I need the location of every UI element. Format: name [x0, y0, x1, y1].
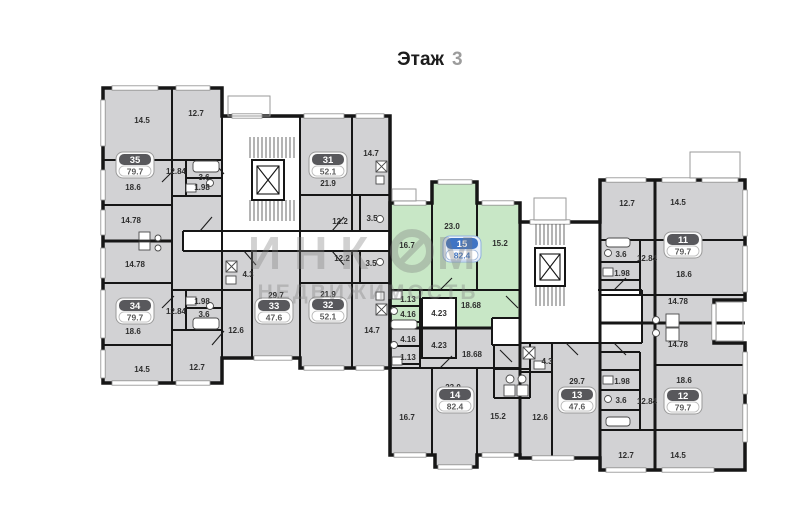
duct-icon [666, 314, 679, 327]
apartment-badge-35[interactable]: 35 79.7 [116, 152, 154, 178]
room-area-label: 14.78 [668, 297, 689, 306]
balcony [392, 189, 416, 201]
room-area-label: 1.98 [614, 377, 630, 386]
room-area-label: 1.13 [400, 295, 416, 304]
room-area-label: 4.16 [400, 310, 416, 319]
apartment-badge-15[interactable]: 15 82.4 [443, 236, 481, 262]
apartment-area: 52.1 [320, 312, 337, 322]
room-area-label: 1.98 [614, 269, 630, 278]
room-area-label: 3.6 [615, 396, 627, 405]
room-area-label: 12.7 [618, 451, 634, 460]
balcony [534, 198, 566, 220]
apartment-area: 79.7 [127, 167, 144, 177]
apartment-number: 33 [269, 301, 280, 312]
bathtub-icon [606, 417, 630, 426]
apartment-number: 31 [323, 155, 334, 166]
apartment-number: 32 [323, 300, 334, 311]
room-area-label: 16.7 [399, 413, 415, 422]
bathtub-icon [391, 320, 417, 329]
washer-icon [603, 376, 613, 384]
balcony [690, 152, 740, 178]
room-area-label: 15.2 [492, 239, 508, 248]
apartment-badge-11[interactable]: 11 79.7 [664, 232, 702, 258]
apartment-area: 47.6 [569, 402, 586, 412]
room-area-label: 18.6 [676, 270, 692, 279]
sink-square-icon [376, 176, 384, 184]
room-area-label: 12.7 [188, 109, 204, 118]
room-area-label: 4.3 [541, 357, 553, 366]
room-area-label: 16.7 [399, 241, 415, 250]
apartment-number: 13 [572, 390, 583, 401]
room-area-label: 12.6 [532, 413, 548, 422]
room-area-label: 3.6 [198, 310, 210, 319]
floorplan-page: 14.5 12.7 12.84 3.6 1.98 18.6 14.78 14.7… [0, 0, 800, 529]
room-area-label: 14.5 [670, 451, 686, 460]
room-area-label: 4.16 [400, 335, 416, 344]
apartment-15-entry [493, 318, 520, 345]
room-area-label: 14.7 [363, 149, 379, 158]
apartment-badge-32[interactable]: 32 52.1 [309, 297, 347, 323]
room-area-label: 18.6 [125, 327, 141, 336]
apartment-area: 79.7 [127, 313, 144, 323]
room-area-label: 14.78 [668, 340, 689, 349]
sink-icon [155, 245, 161, 251]
toilet-icon [391, 342, 398, 349]
room-area-label: 1.98 [194, 297, 210, 306]
apartment-area: 79.7 [675, 247, 692, 257]
apartment-number: 15 [457, 239, 468, 250]
apartment-number: 34 [130, 301, 141, 312]
room-area-label: 21.9 [320, 179, 336, 188]
floorplan-svg: 14.5 12.7 12.84 3.6 1.98 18.6 14.78 14.7… [0, 0, 800, 529]
apartment-number: 35 [130, 155, 141, 166]
floor-title-label: Этаж [397, 49, 444, 70]
apartment-badge-12[interactable]: 12 79.7 [664, 388, 702, 414]
room-area-label: 14.5 [134, 365, 150, 374]
duct-icon [504, 385, 515, 396]
room-area-label: 12.84 [637, 397, 658, 406]
room-area-label: 12.84 [166, 307, 187, 316]
apartment-number: 11 [678, 235, 689, 246]
bathtub-icon [193, 161, 219, 172]
bathtub-icon [193, 318, 219, 329]
apartment-badge-33[interactable]: 33 47.6 [255, 298, 293, 324]
room-area-label: 3.6 [615, 250, 627, 259]
apartment-badge-31[interactable]: 31 52.1 [309, 152, 347, 178]
balcony [228, 96, 270, 116]
sink-square-icon [376, 292, 384, 300]
room-area-label: 14.5 [670, 198, 686, 207]
apartment-number: 12 [678, 391, 689, 402]
room-area-label: 18.6 [125, 183, 141, 192]
room-area-label: 15.2 [490, 412, 506, 421]
room-area-label: 4.3 [242, 270, 254, 279]
floor-title-number: 3 [452, 49, 463, 70]
toilet-icon [377, 259, 384, 266]
building-sections [103, 88, 745, 470]
duct-icon [517, 385, 528, 396]
floor-title: Этаж 3 [397, 49, 462, 70]
apartment-area: 82.4 [454, 251, 471, 261]
room-area-label: 12.84 [637, 254, 658, 263]
room-area-label: 3.5 [366, 214, 378, 223]
apartment-area: 82.4 [447, 402, 464, 412]
apartment-area: 79.7 [675, 403, 692, 413]
toilet-icon [605, 250, 612, 257]
toilet-icon [605, 396, 612, 403]
room-area-label: 14.5 [134, 116, 150, 125]
sink-icon [155, 235, 161, 241]
apartment-badge-14[interactable]: 14 82.4 [436, 387, 474, 413]
sink-icon [653, 330, 660, 337]
duct-icon [139, 232, 150, 240]
sink-icon [518, 375, 526, 383]
bathtub-icon [606, 238, 630, 247]
apartment-badge-34[interactable]: 34 79.7 [116, 298, 154, 324]
room-area-label: 12.2 [332, 217, 348, 226]
apartment-number: 14 [450, 390, 461, 401]
room-area-label: 3.6 [198, 173, 210, 182]
room-area-label: 18.6 [676, 376, 692, 385]
room-area-label: 14.7 [364, 326, 380, 335]
room-area-label: 4.23 [431, 341, 447, 350]
washer-icon [226, 276, 236, 284]
room-area-label: 1.13 [400, 353, 416, 362]
left-stair-core [222, 118, 300, 231]
toilet-icon [391, 308, 398, 315]
room-area-label: 1.98 [194, 183, 210, 192]
room-area-label: 14.78 [121, 216, 142, 225]
room-area-label: 12.2 [334, 254, 350, 263]
sink-icon [653, 317, 660, 324]
room-area-label: 3.5 [365, 259, 377, 268]
room-area-label: 14.78 [125, 260, 146, 269]
left-corridor [183, 231, 390, 251]
room-area-label: 18.68 [462, 350, 483, 359]
room-area-label: 18.68 [461, 301, 482, 310]
room-area-label: 29.7 [569, 377, 585, 386]
right-corridor [598, 290, 642, 343]
apartment-area: 47.6 [266, 313, 283, 323]
apartment-badge-13[interactable]: 13 47.6 [558, 387, 596, 413]
room-area-label: 23.0 [444, 222, 460, 231]
apartment-area: 52.1 [320, 167, 337, 177]
room-area-label: 12.7 [619, 199, 635, 208]
room-area-label: 12.6 [228, 326, 244, 335]
sink-icon [506, 375, 514, 383]
room-area-label: 12.84 [166, 167, 187, 176]
room-area-label: 4.23 [431, 309, 447, 318]
duct-icon [139, 242, 150, 250]
washer-icon [603, 268, 613, 276]
room-area-label: 12.7 [189, 363, 205, 372]
